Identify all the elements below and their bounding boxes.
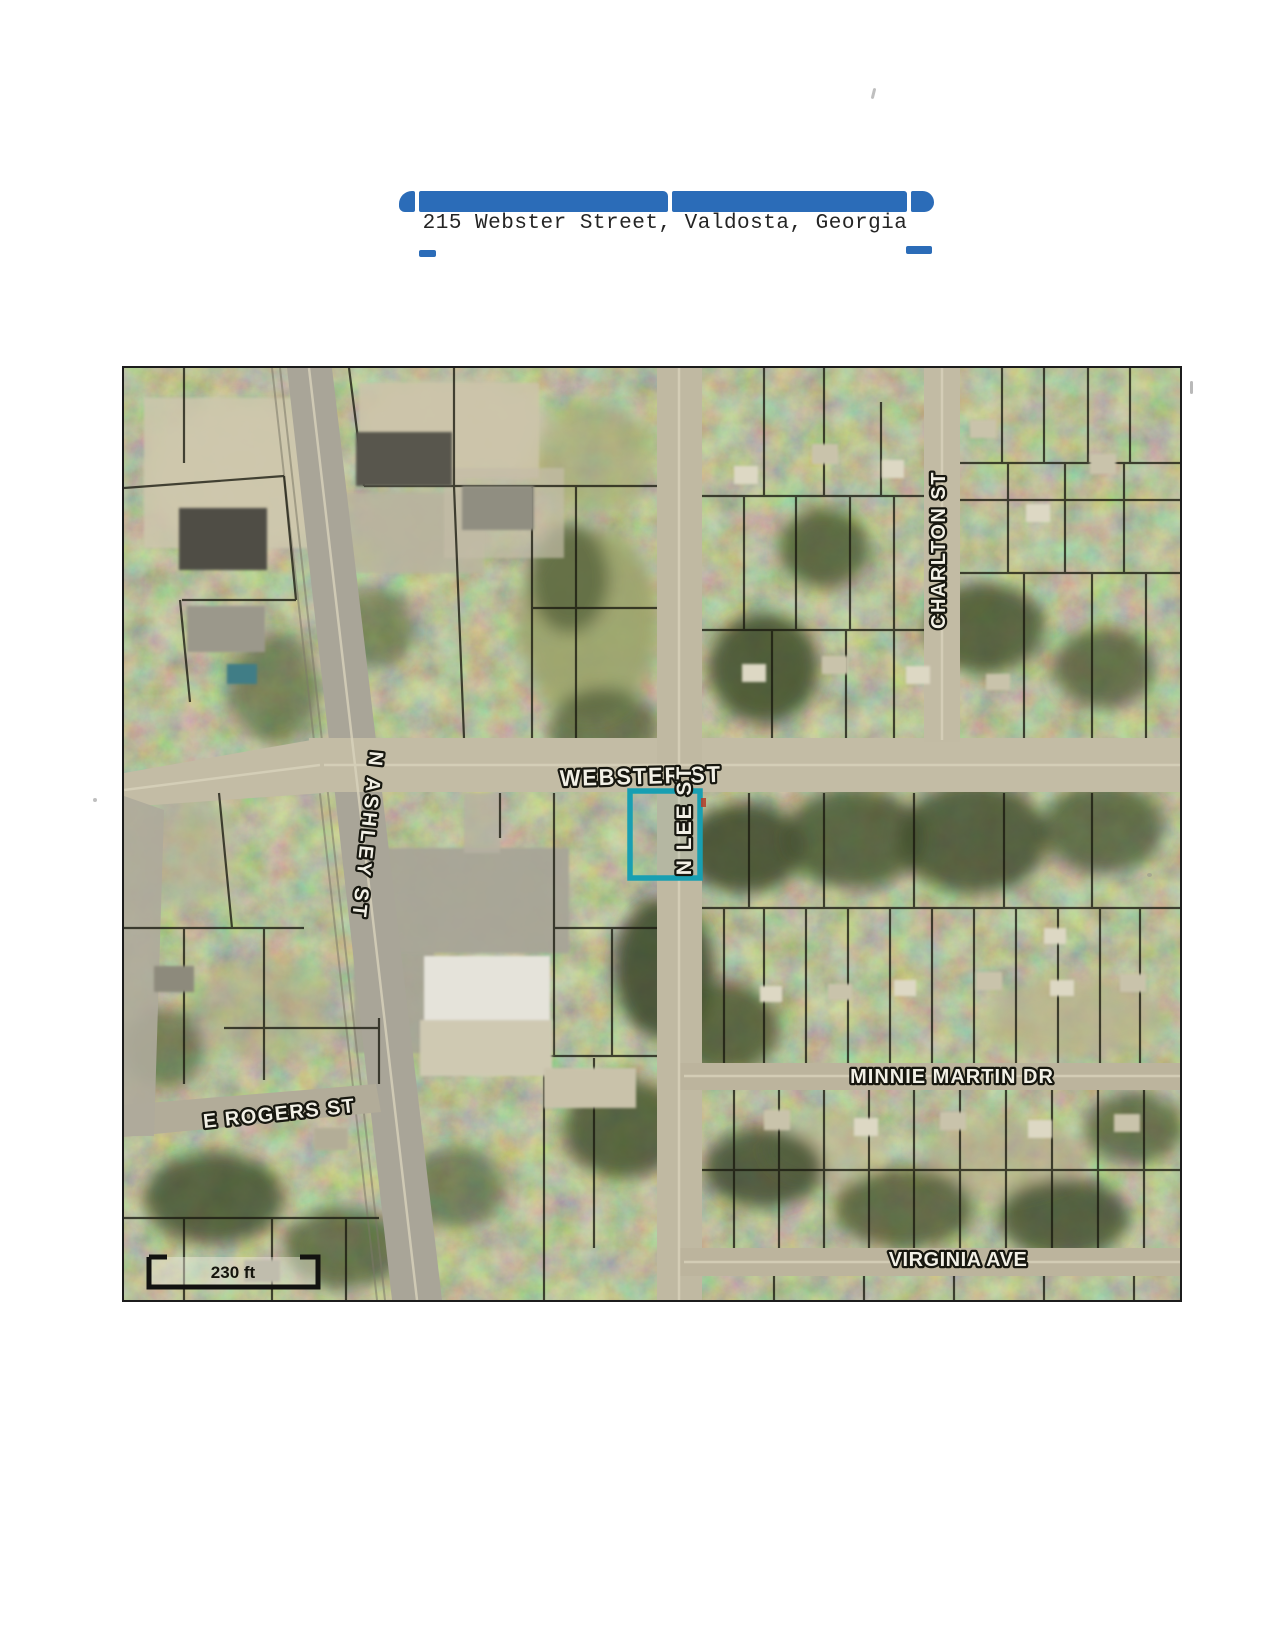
street-label-virginia: VIRGINIA AVE <box>889 1249 1028 1271</box>
street-label-minnie-martin: MINNIE MARTIN DR <box>850 1066 1054 1088</box>
title-rule-bar-1 <box>419 191 668 212</box>
scan-artifact <box>93 798 97 802</box>
street-label-charlton: CHARLTON ST <box>928 471 950 629</box>
scale-label: 230 ft <box>211 1263 256 1282</box>
page-title: 215 Webster Street, Valdosta, Georgia <box>385 212 945 235</box>
scanned-document-page: 215 Webster Street, Valdosta, Georgia <box>0 0 1275 1651</box>
scale-bar: 230 ft <box>149 1257 318 1287</box>
aerial-map-image: WEBSTER ST N LEE ST N ASHLEY ST CHARLTON… <box>124 368 1180 1300</box>
title-rule-left-nub <box>399 191 415 212</box>
parcel-corner-marker <box>701 798 706 807</box>
title-rule-right-cap <box>911 191 934 212</box>
scan-artifact <box>1190 381 1193 394</box>
scan-artifact <box>871 88 877 99</box>
street-label-webster: WEBSTER ST <box>559 761 722 791</box>
street-label-n-lee: N LEE ST <box>673 765 696 876</box>
title-rule-left-dash <box>419 250 436 257</box>
scan-artifact <box>1147 873 1152 877</box>
title-rule-bar-2 <box>672 191 907 212</box>
title-rule-right-dash <box>906 246 932 254</box>
aerial-map: WEBSTER ST N LEE ST N ASHLEY ST CHARLTON… <box>122 366 1182 1302</box>
